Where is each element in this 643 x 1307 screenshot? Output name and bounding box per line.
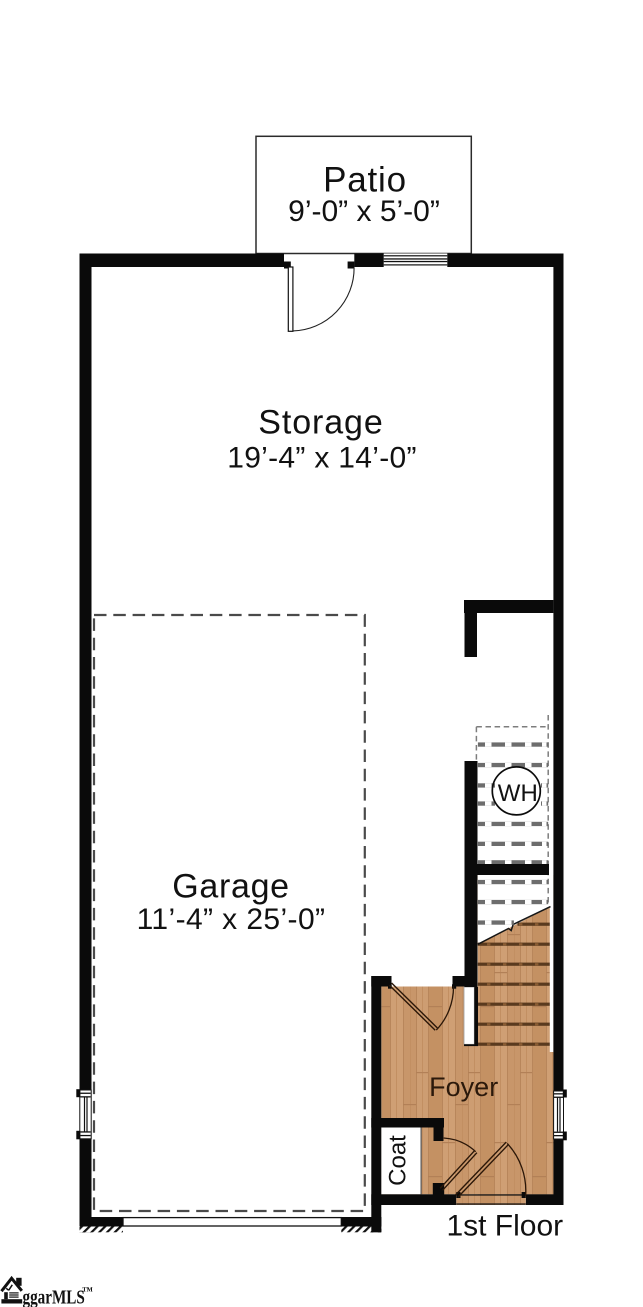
- svg-text:Storage: Storage: [258, 404, 383, 442]
- svg-text:WH: WH: [498, 780, 538, 807]
- svg-text:19’-4” x 14’-0”: 19’-4” x 14’-0”: [227, 442, 417, 475]
- svg-text:Patio: Patio: [323, 161, 407, 200]
- svg-text:11’-4” x 25’-0”: 11’-4” x 25’-0”: [137, 903, 326, 936]
- svg-text:™: ™: [82, 1286, 93, 1298]
- svg-text:Coat: Coat: [385, 1135, 412, 1186]
- svg-text:9’-0” x 5’-0”: 9’-0” x 5’-0”: [288, 195, 440, 228]
- svg-text:ggarMLS: ggarMLS: [23, 1285, 85, 1307]
- svg-text:Garage: Garage: [172, 867, 290, 905]
- svg-text:1st Floor: 1st Floor: [446, 1210, 563, 1243]
- svg-text:Foyer: Foyer: [429, 1072, 498, 1102]
